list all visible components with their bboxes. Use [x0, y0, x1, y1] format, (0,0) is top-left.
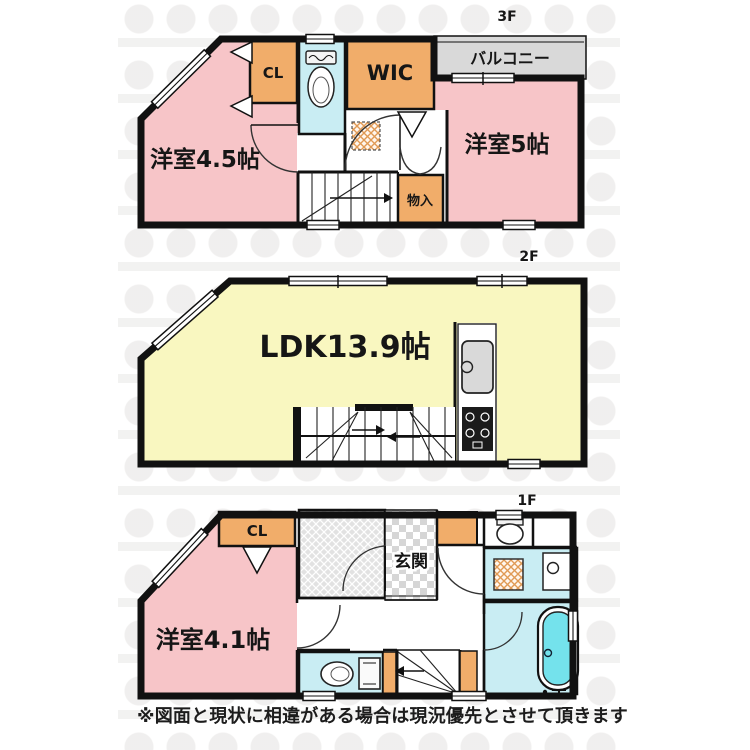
entrance-floor-1f [299, 510, 385, 598]
balcony-label-3f: バルコニー [470, 49, 550, 68]
stove-icon [462, 407, 493, 451]
stair-storage-1f [460, 651, 477, 695]
stairs-2f [293, 404, 455, 464]
storage-label-3f: 物入 [407, 193, 433, 209]
window-1f-bottom-left [303, 692, 335, 701]
toilet-icon-3f [306, 51, 336, 107]
window-3f-bottom-left [307, 221, 339, 230]
washing-machine-icon [494, 559, 523, 590]
window-3f-bottom-right [503, 221, 535, 230]
room-label-1f: 洋室4.1帖 [156, 626, 271, 654]
window-1f-top [496, 511, 522, 520]
floor-1f: 1F 洋室4.1帖 CL 玄関 [141, 493, 578, 701]
closet-label-3f: CL [263, 64, 284, 82]
floorplan-canvas: 3F 洋室4.5帖 CL WIC バルコニー 洋室5帖 物入 [0, 0, 750, 750]
disclaimer-text: ※図面と現状に相違がある場合は現況優先とさせて頂きます [137, 702, 637, 728]
entrance-label-1f: 玄関 [394, 551, 428, 572]
floorplan-svg: 3F 洋室4.5帖 CL WIC バルコニー 洋室5帖 物入 [0, 0, 750, 750]
window-2f-top-right [477, 274, 527, 288]
vanity-icon [543, 553, 574, 590]
room-label-3f-right: 洋室5帖 [464, 131, 549, 158]
window-2f-bottom [508, 460, 540, 469]
floor-2f: 2F LDK13.9帖 [141, 249, 584, 469]
faucet-icon [462, 362, 473, 373]
window-3f-balcony-door [452, 72, 514, 85]
ldk-label-2f: LDK13.9帖 [259, 330, 430, 365]
toilet-shelf-1f [383, 652, 396, 694]
window-2f-top-left [289, 275, 387, 288]
floor-label-1f: 1F [517, 493, 536, 509]
floor-3f: 3F 洋室4.5帖 CL WIC バルコニー 洋室5帖 物入 [141, 9, 586, 230]
window-1f-bottom-right [452, 692, 486, 701]
kitchen-2f [455, 322, 497, 464]
floor-label-2f: 2F [519, 249, 538, 265]
closet-label-1f: CL [247, 522, 268, 540]
window-3f-top [306, 35, 334, 44]
floor-label-3f: 3F [497, 9, 516, 25]
room-label-3f-left: 洋室4.5帖 [150, 146, 260, 173]
wic-label-3f: WIC [367, 61, 413, 85]
window-1f-right [569, 611, 578, 641]
